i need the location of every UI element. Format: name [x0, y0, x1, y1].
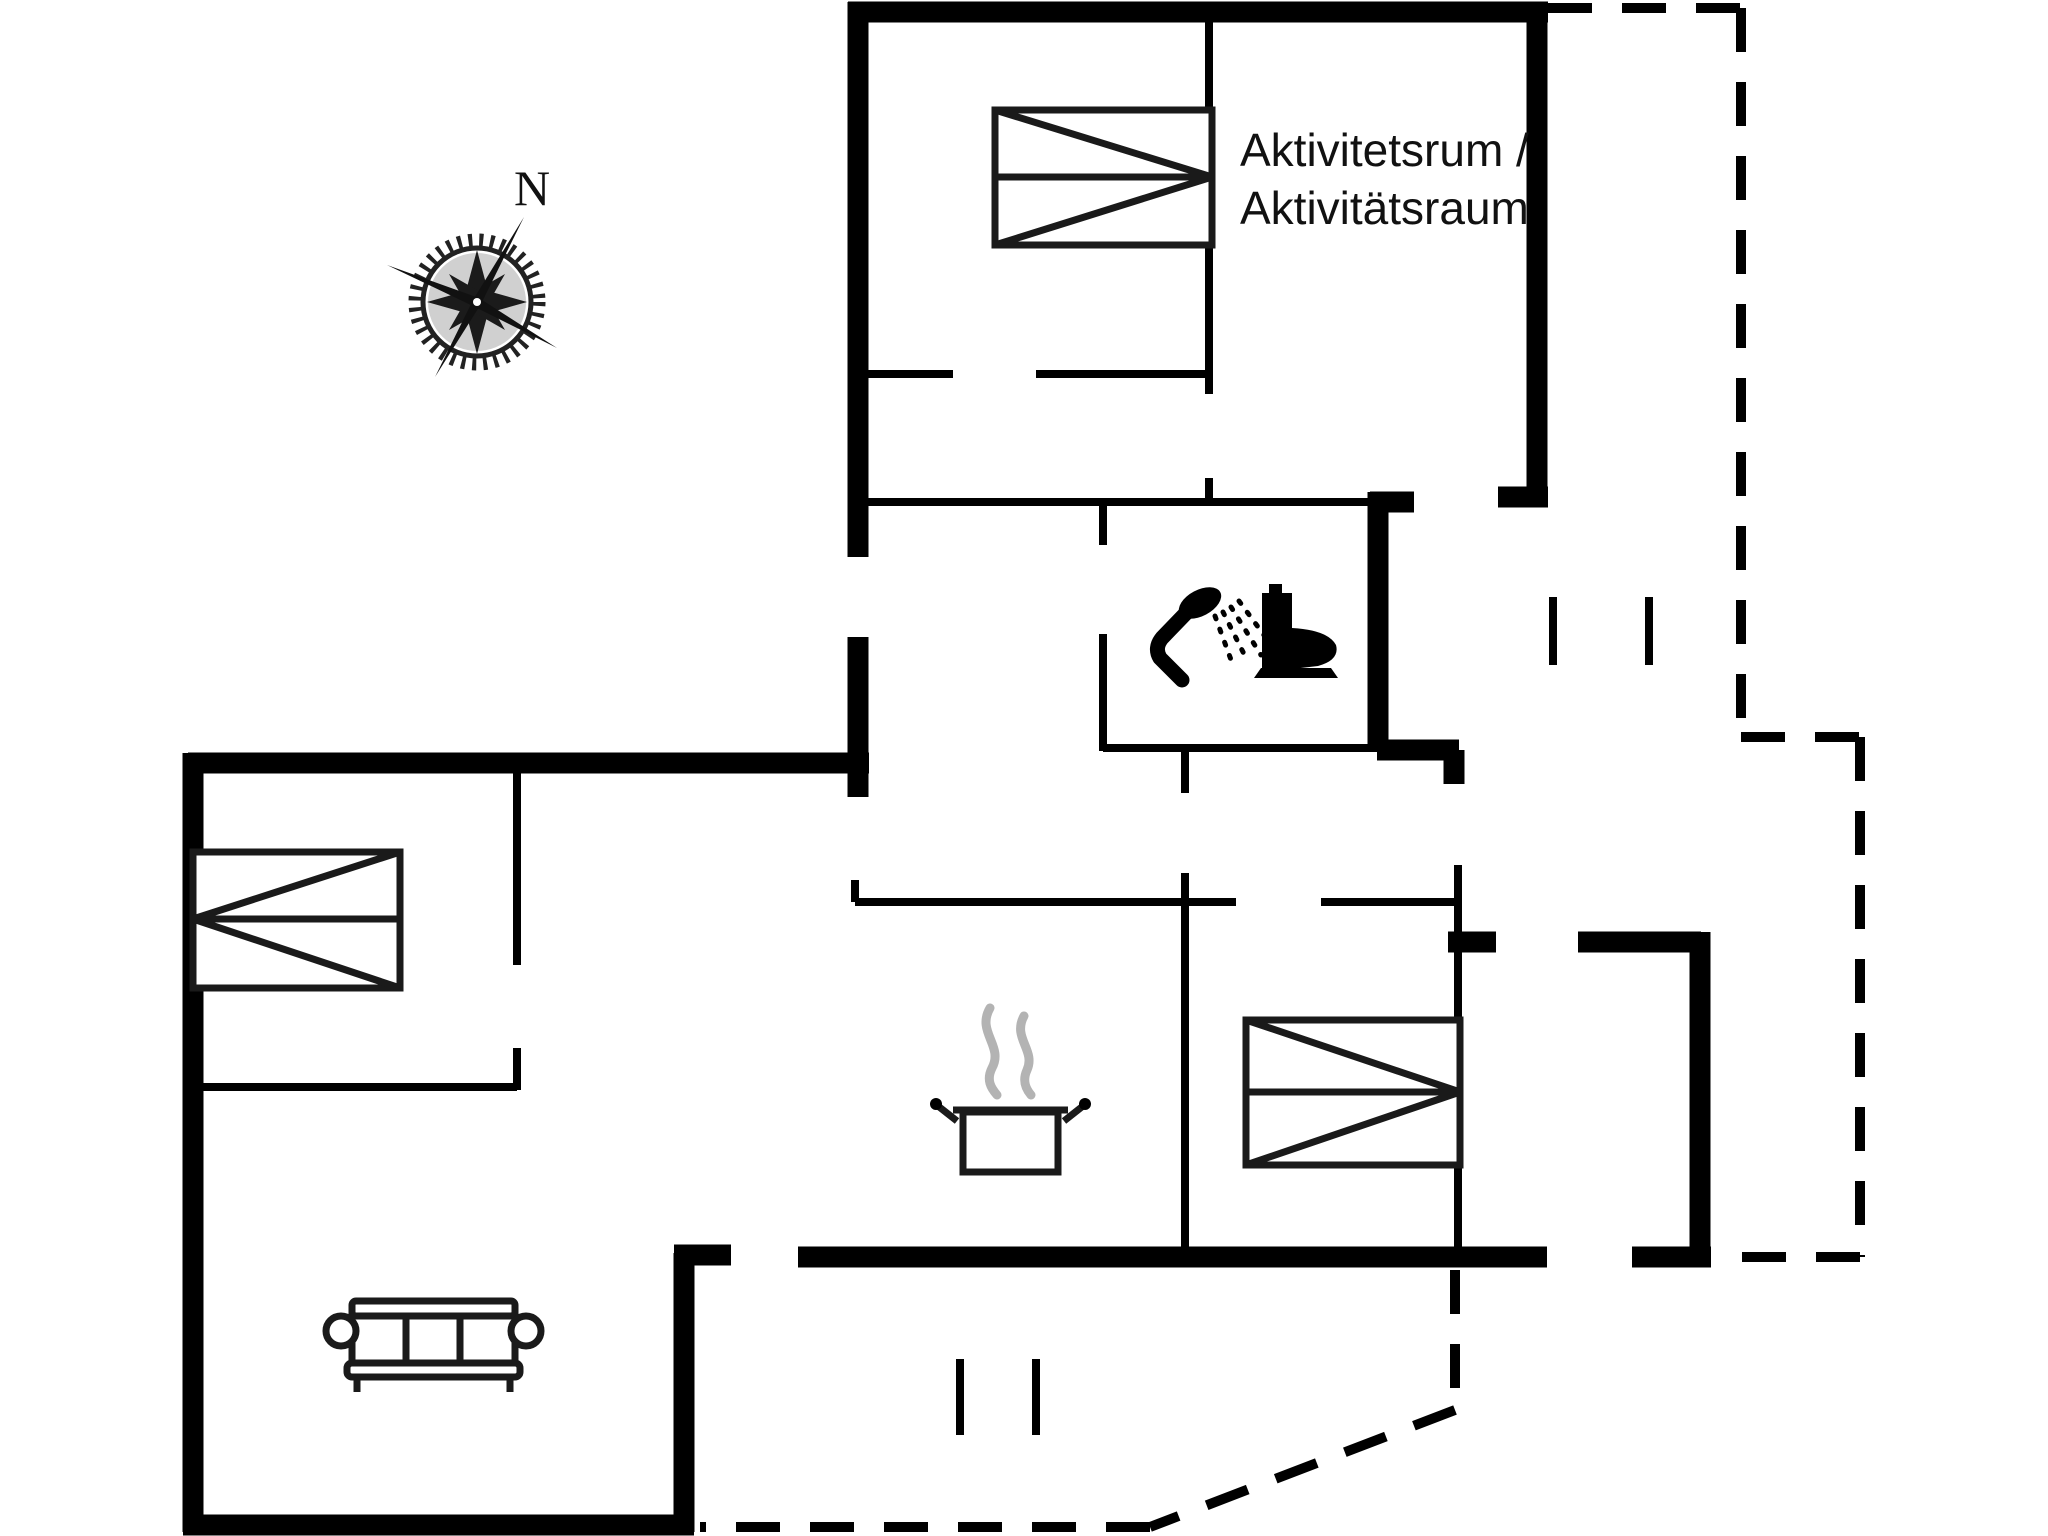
pot-body — [963, 1112, 1058, 1172]
bed-icon-activity-room — [995, 110, 1212, 245]
shower-icon — [1157, 581, 1272, 680]
cooking-pot-icon — [930, 1008, 1091, 1172]
bed-icon-right-bedroom — [1246, 1020, 1460, 1165]
pot-handle-knob-left — [930, 1098, 942, 1110]
steam-wisp-2 — [1021, 1016, 1031, 1095]
toilet-tank — [1262, 593, 1292, 668]
door-mark-path — [960, 597, 1649, 1435]
floor-plan-page: N Aktivitetsrum / Aktivitätsraum — [0, 0, 2048, 1536]
door-marks — [960, 597, 1649, 1435]
compass-rose-icon: N — [387, 160, 557, 377]
sofa-seat-rail — [347, 1363, 520, 1377]
terrace-outline — [700, 8, 1860, 1527]
room-label-line1: Aktivitetsrum / — [1240, 124, 1529, 176]
toilet-base — [1254, 668, 1338, 678]
pot-handle-knob-right — [1079, 1098, 1091, 1110]
room-label-line2: Aktivitätsraum — [1240, 182, 1529, 234]
sofa-cushions — [352, 1316, 515, 1363]
steam-wisp-1 — [986, 1008, 997, 1095]
sofa-icon — [326, 1301, 541, 1392]
room-label: Aktivitetsrum / Aktivitätsraum — [1240, 124, 1529, 234]
bed-icon-left-bedroom — [193, 852, 400, 988]
toilet-icon — [1254, 584, 1338, 678]
sofa-arm-left — [326, 1316, 356, 1346]
terrace-dashed-path — [700, 8, 1860, 1527]
sofa-arm-right — [511, 1316, 541, 1346]
floor-plan-drawing: N Aktivitetsrum / Aktivitätsraum — [0, 0, 2048, 1536]
north-label: N — [514, 160, 550, 216]
toilet-button — [1269, 584, 1282, 593]
compass-pivot — [473, 298, 481, 306]
shower-arm — [1157, 610, 1189, 680]
toilet-bowl — [1292, 628, 1337, 669]
